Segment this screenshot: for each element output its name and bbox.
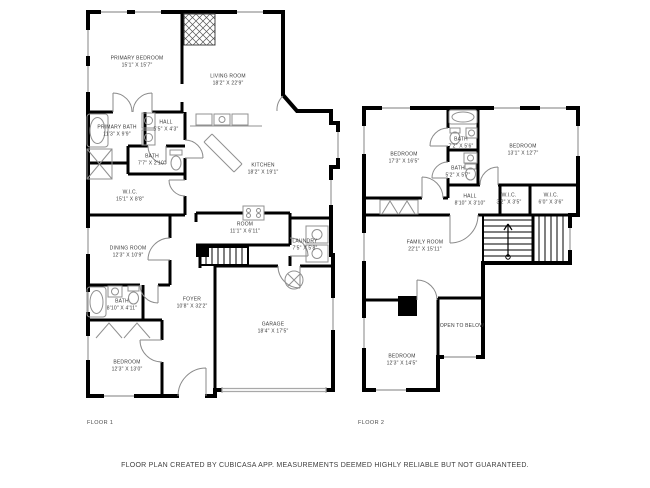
room-label-laundry: LAUNDRY 7'5" X 5'8" <box>292 239 317 252</box>
room-label-wic-f2-large: W.I.C. 6'0" X 3'6" <box>539 193 564 206</box>
stairs-up-arrow-icon <box>504 224 512 257</box>
room-dims: 3'2" X 3'5" <box>497 199 522 206</box>
room-dims: 17'3" X 16'5" <box>389 158 420 165</box>
floor1-walls <box>88 12 338 396</box>
room-label-primary-bedroom: PRIMARY BEDROOM 15'1" X 15'7" <box>111 56 164 69</box>
room-dims: 8'10" X 3'10" <box>455 200 486 207</box>
room-label-dining-room: DINING ROOM 12'3" X 10'9" <box>110 246 147 259</box>
floorplan-drawing <box>0 0 650 488</box>
room-dims: 15'1" X 8'8" <box>116 196 144 203</box>
room-name: OPEN TO BELOW <box>440 323 484 330</box>
room-dims: 5'2" X 5'7" <box>446 172 471 179</box>
room-label-wic-f2-small: W.I.C. 3'2" X 3'5" <box>497 193 522 206</box>
room-name: BEDROOM <box>389 152 420 159</box>
room-label-primary-bath: PRIMARY BATH 11'3" X 9'9" <box>97 125 136 138</box>
room-dims: 18'4" X 17'5" <box>258 328 289 335</box>
floor1-windows <box>88 12 338 396</box>
room-label-bath-f1: BATH 8'10" X 4'11" <box>107 299 138 312</box>
room-name: KITCHEN <box>248 163 279 170</box>
room-dims: 11'1" X 6'11" <box>230 228 260 235</box>
room-dims: 12'3" X 13'0" <box>112 366 143 373</box>
room-name: PRIMARY BATH <box>97 125 136 132</box>
room-dims: 8'10" X 4'11" <box>107 305 138 312</box>
disclaimer-text: FLOOR PLAN CREATED BY CUBICASA APP. MEAS… <box>0 462 650 469</box>
room-name: DINING ROOM <box>110 246 147 253</box>
room-dims: 7'5" X 5'8" <box>292 245 317 252</box>
room-label-bath-f2-mid: BATH 5'2" X 5'7" <box>446 166 471 179</box>
room-dims: 5'5" X 4'3" <box>154 126 179 133</box>
room-dims: 10'8" X 32'2" <box>177 303 208 310</box>
island-counter-icon <box>204 134 242 172</box>
room-label-family-room: FAMILY ROOM 22'1" X 15'11" <box>407 240 443 253</box>
room-name: BEDROOM <box>387 354 418 361</box>
room-label-hall-f2: HALL 8'10" X 3'10" <box>455 194 486 207</box>
room-name: BEDROOM <box>112 360 143 367</box>
room-label-bath-f2-top: BATH 7'2" X 5'6" <box>449 137 474 150</box>
room-dims: 12'3" X 14'5" <box>387 360 418 367</box>
room-name: LAUNDRY <box>292 239 317 246</box>
room-label-bath-small-f1: BATH 7'7" X 2'10" <box>138 154 166 167</box>
room-label-open-to-below: OPEN TO BELOW <box>440 323 484 330</box>
room-dims: 7'2" X 5'6" <box>449 143 474 150</box>
floor2-walls <box>364 108 578 390</box>
room-dims: 22'1" X 15'11" <box>407 246 443 253</box>
room-name: PRIMARY BEDROOM <box>111 56 164 63</box>
floor1-label: FLOOR 1 <box>87 420 113 426</box>
room-dims: 6'0" X 3'6" <box>539 199 564 206</box>
room-name: FAMILY ROOM <box>407 240 443 247</box>
room-label-bedroom-f2-left: BEDROOM 17'3" X 16'5" <box>389 152 420 165</box>
room-dims: 12'3" X 10'9" <box>110 252 147 259</box>
floor2-label: FLOOR 2 <box>358 420 384 426</box>
room-dims: 11'3" X 9'9" <box>97 131 136 138</box>
room-name: BEDROOM <box>508 144 539 151</box>
toilet-icon <box>170 150 182 155</box>
room-label-kitchen: KITCHEN 18'2" X 19'1" <box>248 163 279 176</box>
room-label-hall-f1: HALL 5'5" X 4'3" <box>154 120 179 133</box>
room-dims: 18'2" X 19'1" <box>248 169 279 176</box>
room-dims: 15'1" X 15'7" <box>111 62 164 69</box>
room-name: GARAGE <box>258 322 289 329</box>
floorplan-page: PRIMARY BEDROOM 15'1" X 15'7" LIVING ROO… <box>0 0 650 488</box>
room-label-living-room: LIVING ROOM 18'2" X 22'9" <box>210 74 246 87</box>
closet-doors-icon <box>96 323 150 338</box>
floor2-stairs <box>484 216 563 262</box>
room-label-bedroom-f2-right: BEDROOM 13'1" X 12'7" <box>508 144 539 157</box>
room-label-bedroom-f2-bottom: BEDROOM 12'3" X 14'5" <box>387 354 418 367</box>
toilet-icon <box>128 286 139 291</box>
room-label-garage: GARAGE 18'4" X 17'5" <box>258 322 289 335</box>
room-label-room: ROOM 11'1" X 6'11" <box>230 222 260 235</box>
sink-icon <box>214 114 230 125</box>
closet-doors-icon <box>382 201 415 214</box>
room-dims: 18'2" X 22'9" <box>210 80 246 87</box>
hatched-area-icon <box>184 14 215 45</box>
stove-icon <box>243 206 264 220</box>
room-name: LIVING ROOM <box>210 74 246 81</box>
room-dims: 13'1" X 12'7" <box>508 150 539 157</box>
room-label-bedroom-f1: BEDROOM 12'3" X 13'0" <box>112 360 143 373</box>
closet-icon <box>380 200 418 214</box>
room-dims: 7'7" X 2'10" <box>138 160 166 167</box>
room-label-wic-f1: W.I.C. 15'1" X 8'8" <box>116 190 144 203</box>
room-label-foyer: FOYER 10'8" X 32'2" <box>177 297 208 310</box>
